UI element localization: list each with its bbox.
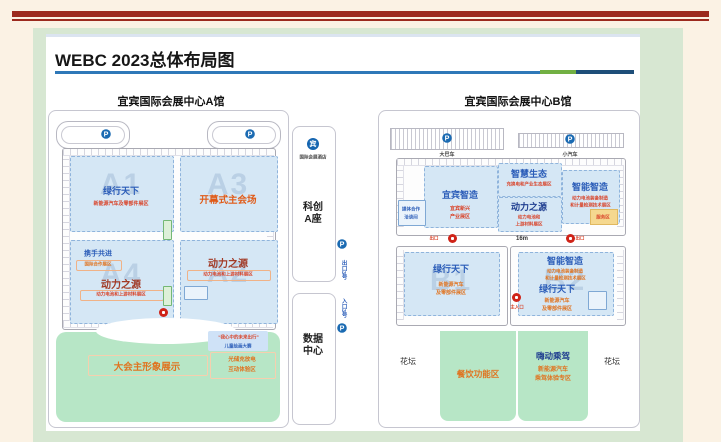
hall-a-main-gate-icon xyxy=(159,308,168,317)
top-maroon-bar xyxy=(12,11,709,17)
top-maroon-line xyxy=(12,19,709,21)
lawn-main-display-label: 大会主形象展示 xyxy=(88,359,206,373)
zone-b2-annotation-box xyxy=(588,291,607,310)
hall-a-header: 宜宾国际会展中心A馆 xyxy=(61,93,281,109)
media-meeting-box xyxy=(398,200,426,226)
hall-a-corridor-sign xyxy=(163,220,172,240)
hall-b-flowerbed-right: 花坛 xyxy=(592,356,632,367)
hall-a-rooms-top xyxy=(63,149,273,156)
hall-b-header: 宜宾国际会展中心B馆 xyxy=(408,93,628,109)
center-exit-label: 出口3号 xyxy=(336,252,351,292)
zone-b3-power-title: 动力之源 xyxy=(498,200,560,213)
hall-b-main-gate-icon xyxy=(512,293,521,302)
tower-a-label-line2: A座 xyxy=(292,210,334,225)
parking-icon: P xyxy=(337,239,347,249)
zone-b2-title1: 智能智造 xyxy=(518,254,612,267)
data-center-label-line2: 中心 xyxy=(292,342,334,357)
title-underline-navy xyxy=(576,70,634,74)
hotel-icon: 宾 xyxy=(307,138,319,150)
zone-b3-yibin-title: 宜宾智造 xyxy=(424,188,496,201)
zone-a2 xyxy=(180,240,278,324)
zone-a3-title: 开幕式主会场 xyxy=(180,192,276,206)
zone-a2-annotation-box xyxy=(184,286,208,300)
hall-b2-rooms-right xyxy=(617,250,624,320)
parking-icon: P xyxy=(565,134,575,144)
hall-b1-rooms-left xyxy=(397,250,404,320)
hall-b-exit-left-icon xyxy=(448,234,457,243)
page-title: WEBC 2023总体布局图 xyxy=(55,46,375,71)
hall-a-parking-right xyxy=(207,121,281,149)
hall-a-parking-left xyxy=(56,121,130,149)
parking-icon: P xyxy=(245,129,255,139)
title-underline-green xyxy=(540,70,576,74)
zone-a4-title: 动力之源 xyxy=(70,276,172,291)
zone-b3-intelligent-title: 智能智造 xyxy=(562,180,618,193)
data-center-block xyxy=(292,293,336,425)
title-underline-blue xyxy=(55,71,540,74)
hall-b-dining-label: 餐饮功能区 xyxy=(440,368,516,380)
zone-b3-smart-eco-title: 智慧生态 xyxy=(498,167,560,180)
zone-b1-title: 绿行天下 xyxy=(404,262,498,275)
parking-icon: P xyxy=(337,323,347,333)
hall-a-rooms-left xyxy=(63,155,70,321)
hall-b-drive-title: 嗨动乘驾 xyxy=(518,350,588,362)
parking-icon: P xyxy=(101,129,111,139)
hall-b-flowerbed-left: 花坛 xyxy=(388,356,428,367)
zone-a2-title: 动力之源 xyxy=(180,255,276,270)
hall-a-corridor-sign xyxy=(163,286,172,306)
zone-a1-title: 绿行天下 xyxy=(70,184,172,197)
parking-icon: P xyxy=(442,133,452,143)
